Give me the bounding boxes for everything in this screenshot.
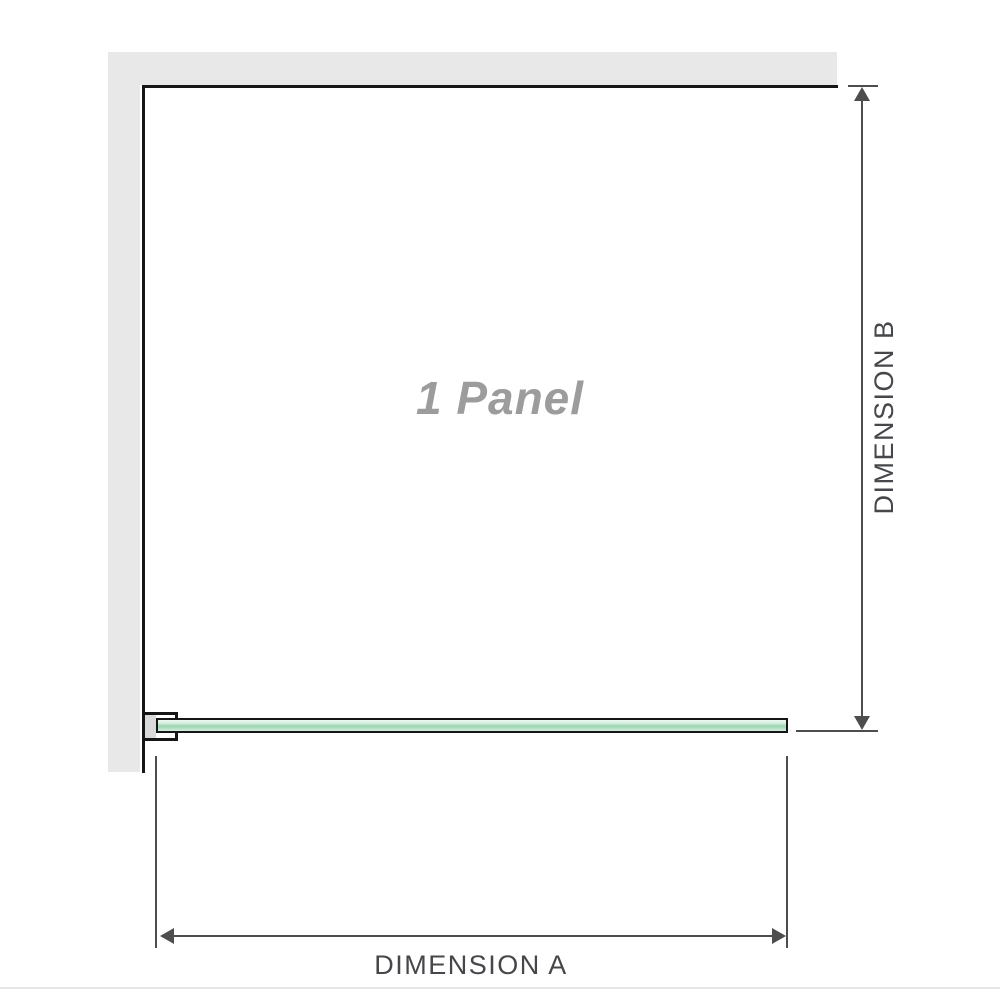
wall-left-bar xyxy=(108,52,140,772)
wall-top-bar xyxy=(108,52,837,85)
dim-a-extension-left xyxy=(155,756,157,948)
dim-a-arrow-right-icon xyxy=(772,928,786,944)
wall-inner-line-left xyxy=(142,85,145,773)
dim-b-arrow-down-icon xyxy=(854,716,870,730)
dim-b-line xyxy=(861,92,863,724)
glass-panel xyxy=(156,718,788,733)
bracket-pad xyxy=(145,715,156,738)
dim-b-bottom-tick xyxy=(796,730,878,732)
dim-b-label: DIMENSION B xyxy=(869,267,899,567)
wall-inner-line-top xyxy=(142,85,838,88)
panel-count-label: 1 Panel xyxy=(290,370,710,430)
bottom-divider xyxy=(0,987,1000,989)
dim-b-arrow-up-icon xyxy=(854,87,870,101)
dim-a-arrow-left-icon xyxy=(160,928,174,944)
dim-a-extension-right xyxy=(786,756,788,948)
dim-a-label: DIMENSION A xyxy=(163,948,779,982)
dimension-diagram: 1 Panel DIMENSION B DIMENSION A xyxy=(0,0,1000,1000)
dim-a-line xyxy=(166,935,776,937)
